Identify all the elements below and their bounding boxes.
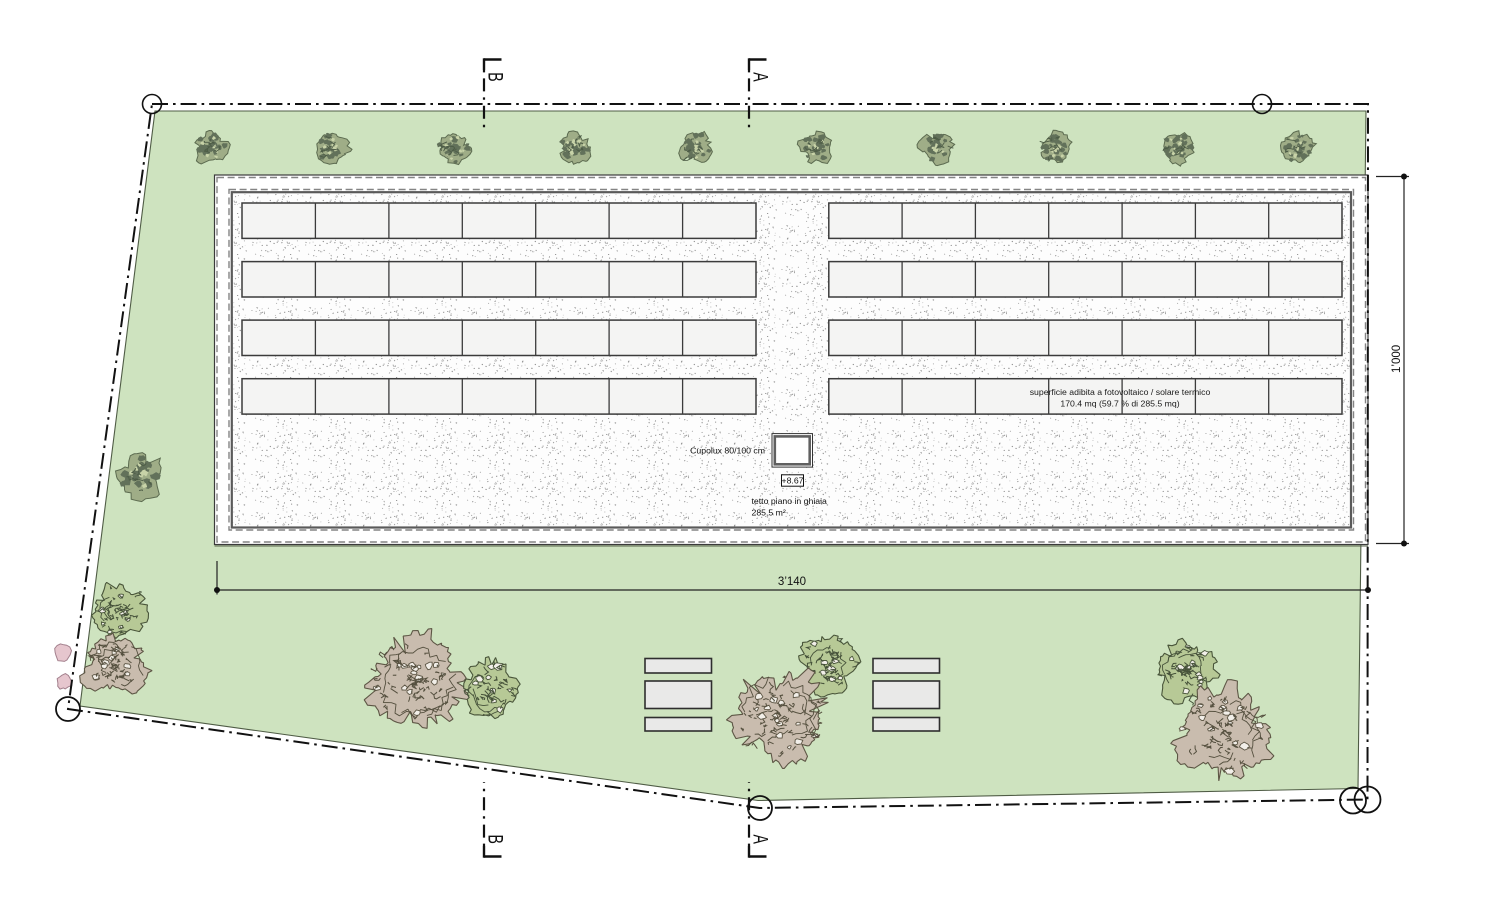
svg-text:1’000: 1’000 xyxy=(1391,345,1403,373)
svg-text:+8.67: +8.67 xyxy=(782,476,804,486)
svg-text:superficie adibita a fotovolta: superficie adibita a fotovoltaico / sola… xyxy=(1030,387,1211,397)
svg-text:A: A xyxy=(749,835,772,844)
svg-text:170.4 mq (59.7 % di 285.5 mq): 170.4 mq (59.7 % di 285.5 mq) xyxy=(1060,399,1179,409)
svg-text:285.5 m²: 285.5 m² xyxy=(752,508,786,518)
svg-text:tetto piano in ghiaia: tetto piano in ghiaia xyxy=(752,496,828,506)
svg-text:A: A xyxy=(749,72,772,81)
svg-text:3’140: 3’140 xyxy=(778,576,806,588)
svg-text:B: B xyxy=(484,72,507,81)
svg-text:Cupolux 80/100 cm: Cupolux 80/100 cm xyxy=(690,446,765,456)
svg-text:B: B xyxy=(484,835,507,844)
